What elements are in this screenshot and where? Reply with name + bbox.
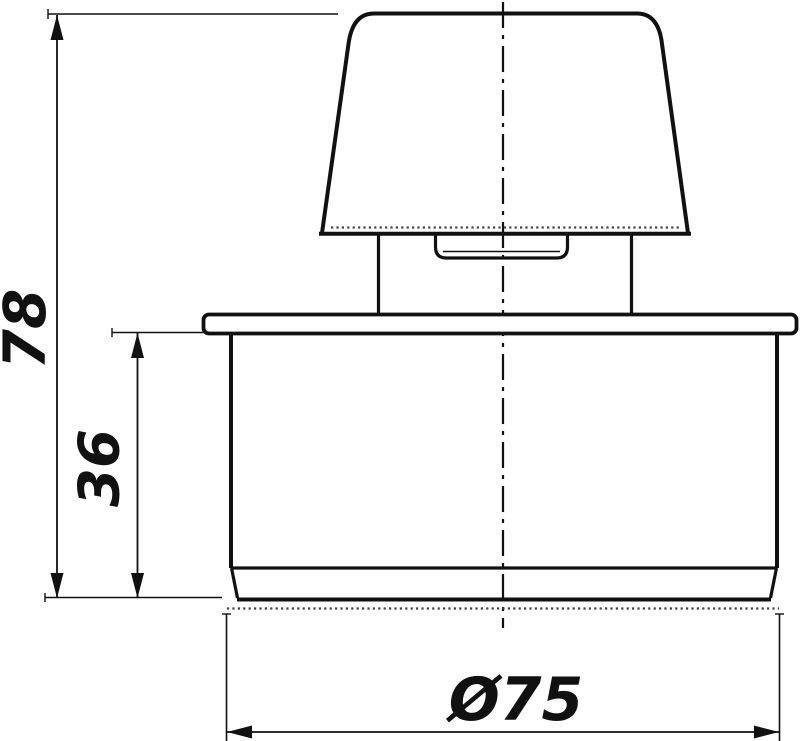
flange-plate [204, 315, 797, 334]
technical-drawing: 78 36 Ø75 [0, 0, 800, 741]
dim-36-arrow-down [131, 573, 144, 598]
dim-36-label: 36 [68, 429, 133, 507]
dim-75-arrow-right [754, 726, 779, 739]
cap-outline [322, 14, 688, 234]
dim-78-arrow-up [51, 15, 64, 40]
dim-36-arrow-up [131, 333, 144, 358]
dim-75-label: Ø75 [446, 665, 584, 735]
drawing-canvas: 78 36 Ø75 [0, 0, 800, 741]
dim-78-arrow-down [51, 573, 64, 598]
dim-78-label: 78 [0, 289, 59, 370]
collar-outline [436, 235, 568, 258]
dim-75-arrow-left [227, 726, 252, 739]
body-rim-left [232, 568, 238, 598]
body-rim-right [771, 568, 777, 598]
